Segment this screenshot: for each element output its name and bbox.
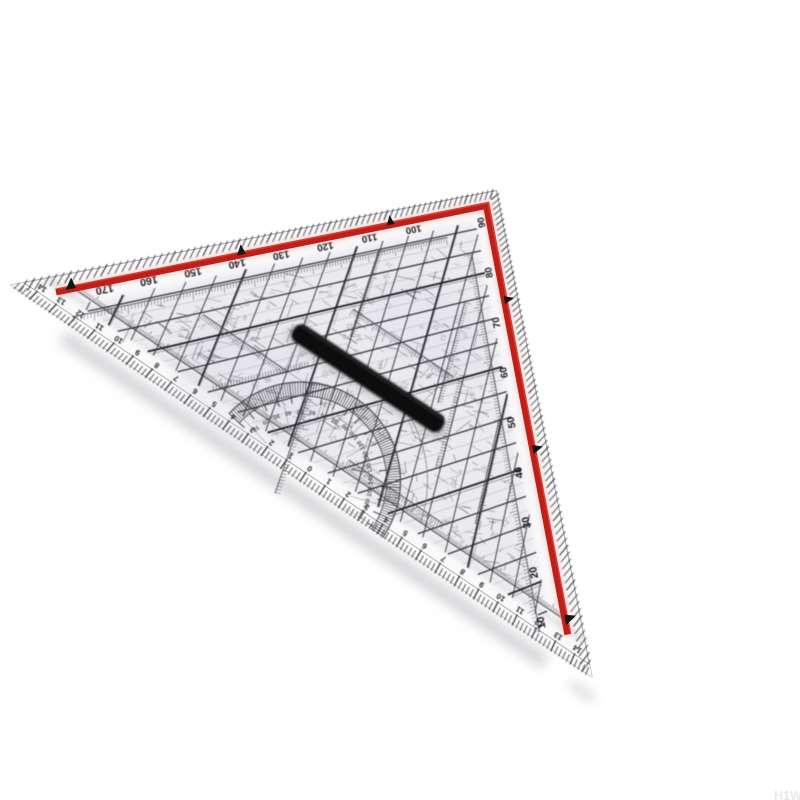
svg-text:24: 24 bbox=[251, 379, 261, 389]
svg-text:30: 30 bbox=[521, 516, 534, 530]
svg-text:8: 8 bbox=[243, 315, 248, 322]
svg-text:10: 10 bbox=[535, 616, 549, 630]
svg-text:45: 45 bbox=[263, 374, 273, 384]
svg-text:50: 50 bbox=[296, 408, 303, 414]
svg-text:140: 140 bbox=[368, 474, 374, 485]
svg-text:32: 32 bbox=[440, 375, 448, 383]
svg-text:24: 24 bbox=[443, 515, 453, 525]
svg-text:H1WC: H1WC bbox=[774, 789, 800, 800]
svg-text:45: 45 bbox=[208, 354, 218, 364]
svg-text:20: 20 bbox=[527, 566, 541, 580]
